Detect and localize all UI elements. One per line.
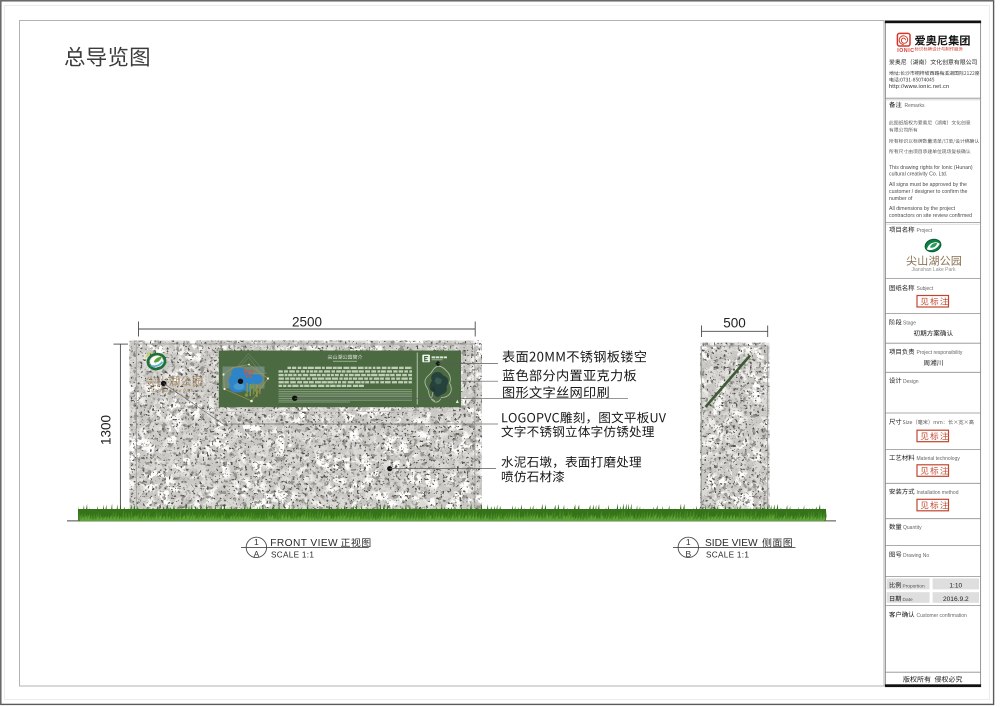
svg-text:http://www.ionic.net.cn: http://www.ionic.net.cn	[889, 84, 949, 90]
svg-text:Remarks: Remarks	[905, 103, 926, 109]
svg-text:A: A	[254, 549, 260, 559]
svg-text:Jianshan Lake Park: Jianshan Lake Park	[912, 267, 956, 273]
svg-text:Quantity: Quantity	[903, 525, 922, 531]
svg-text:number of: number of	[889, 196, 913, 202]
svg-text:Design: Design	[903, 379, 919, 385]
svg-text:cultural creativity Co. Ltd.: cultural creativity Co. Ltd.	[889, 172, 947, 178]
svg-text:Material technology: Material technology	[917, 456, 961, 462]
svg-text:SCALE 1:1: SCALE 1:1	[271, 550, 314, 559]
svg-text:2500: 2500	[292, 315, 322, 330]
svg-text:SCALE 1:1: SCALE 1:1	[706, 550, 749, 559]
svg-text:Project: Project	[917, 228, 933, 234]
svg-text:1300: 1300	[99, 415, 114, 445]
svg-text:Installation method: Installation method	[917, 490, 959, 496]
svg-text:IONIC: IONIC	[897, 48, 914, 54]
svg-text:FRONT VIEW: FRONT VIEW	[270, 538, 338, 549]
svg-text:Proportion: Proportion	[903, 583, 925, 589]
svg-text:1: 1	[686, 537, 691, 547]
svg-text:2016.9.2: 2016.9.2	[943, 596, 969, 603]
svg-text:This drawing rights for Ionic: This drawing rights for Ionic (Hunan)	[889, 165, 973, 171]
svg-text:Stage: Stage	[903, 321, 916, 327]
svg-text:Customer confirmation: Customer confirmation	[917, 613, 968, 619]
svg-text:All dimensions by the project: All dimensions by the project	[889, 206, 956, 212]
svg-text:1:10: 1:10	[949, 583, 962, 590]
svg-text:Drawing No: Drawing No	[903, 553, 929, 559]
svg-text:SIDE VIEW: SIDE VIEW	[705, 538, 758, 549]
svg-text:All signs must be approved by: All signs must be approved by the	[889, 182, 967, 188]
svg-text:Date: Date	[903, 597, 913, 603]
svg-text:Subject: Subject	[917, 286, 934, 292]
svg-text:Project responsibility: Project responsibility	[917, 350, 963, 356]
svg-text:500: 500	[723, 316, 746, 331]
svg-text:contractors on site review con: contractors on site review confirmed	[889, 213, 972, 219]
svg-text:customer / designer to confirm: customer / designer to confirm the	[889, 189, 968, 195]
svg-text:1: 1	[254, 537, 259, 547]
svg-text:B: B	[685, 549, 691, 559]
